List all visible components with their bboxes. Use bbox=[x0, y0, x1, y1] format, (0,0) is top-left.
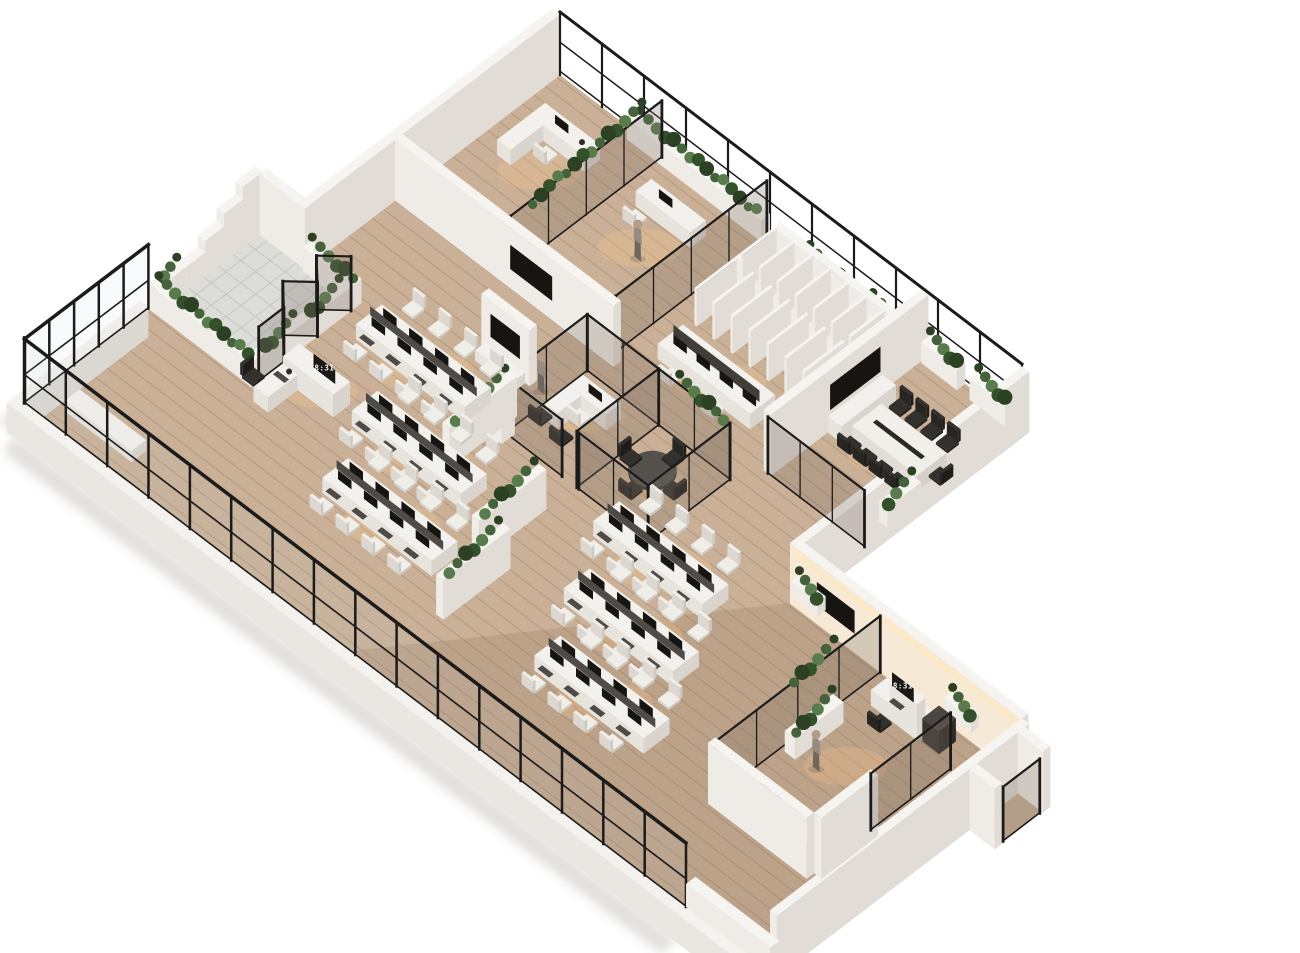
office1-lamp bbox=[579, 139, 585, 145]
accordion-glass-3 bbox=[283, 281, 318, 336]
svg-text:8:31: 8:31 bbox=[893, 682, 913, 691]
svg-text:8:31: 8:31 bbox=[314, 363, 334, 372]
reception-phone bbox=[286, 369, 292, 375]
office-floorplan-render: Isometric 3D office floor plan render 8:… bbox=[0, 0, 1300, 953]
floorplan-svg: Isometric 3D office floor plan render 8:… bbox=[0, 0, 1300, 953]
accordion-glass-1 bbox=[316, 256, 351, 311]
